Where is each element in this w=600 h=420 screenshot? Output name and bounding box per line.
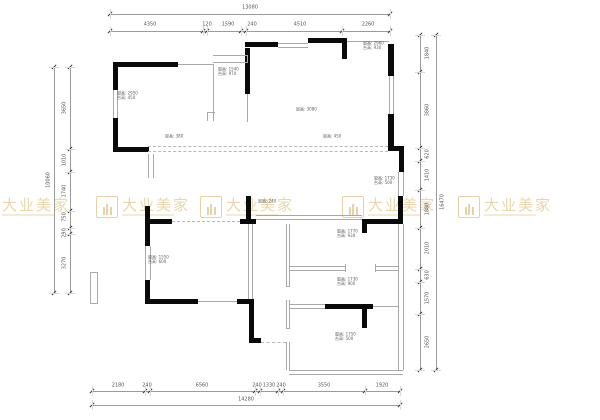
room-annotation: 窗高: 1730台高: 500 — [374, 176, 395, 185]
annotation-line: 台高: 930 — [337, 234, 358, 239]
annotation-layer: 窗高: 2960台高: 930窗高: 1540台高: 970窗高: 2950台高… — [0, 0, 600, 420]
floor-plan-canvas: 大业美家大业美家大业美家大业美家大业美家 1308043501201590240… — [0, 0, 600, 420]
room-annotation: 窗高: 1770台高: 930 — [337, 229, 358, 238]
annotation-line: 梁高: 450 — [323, 134, 341, 139]
room-annotation: 梁高: 240 — [258, 199, 276, 204]
annotation-line: 层高: 3080 — [296, 107, 317, 112]
room-annotation: 层高: 3080 — [296, 107, 317, 112]
room-annotation: 窗高: 1750台高: 500 — [335, 332, 356, 341]
annotation-line: 台高: 500 — [374, 181, 395, 186]
annotation-line: 台高: 970 — [218, 72, 239, 77]
annotation-line: 台高: 500 — [335, 337, 356, 342]
room-annotation: 窗高: 1540台高: 970 — [218, 67, 239, 76]
annotation-line: 梁高: 380 — [165, 134, 183, 139]
room-annotation: 窗高: 1550台高: 600 — [148, 255, 169, 264]
annotation-line: 台高: 600 — [148, 260, 169, 265]
room-annotation: 窗高: 2960台高: 930 — [363, 41, 384, 50]
room-annotation: 梁高: 450 — [323, 134, 341, 139]
room-annotation: 窗高: 1730台高: 900 — [337, 277, 358, 286]
room-annotation: 梁高: 380 — [165, 134, 183, 139]
annotation-line: 梁高: 240 — [258, 199, 276, 204]
room-annotation: 窗高: 2950台高: 450 — [117, 91, 138, 100]
annotation-line: 台高: 930 — [363, 46, 384, 51]
annotation-line: 台高: 450 — [117, 96, 138, 101]
annotation-line: 台高: 900 — [337, 282, 358, 287]
